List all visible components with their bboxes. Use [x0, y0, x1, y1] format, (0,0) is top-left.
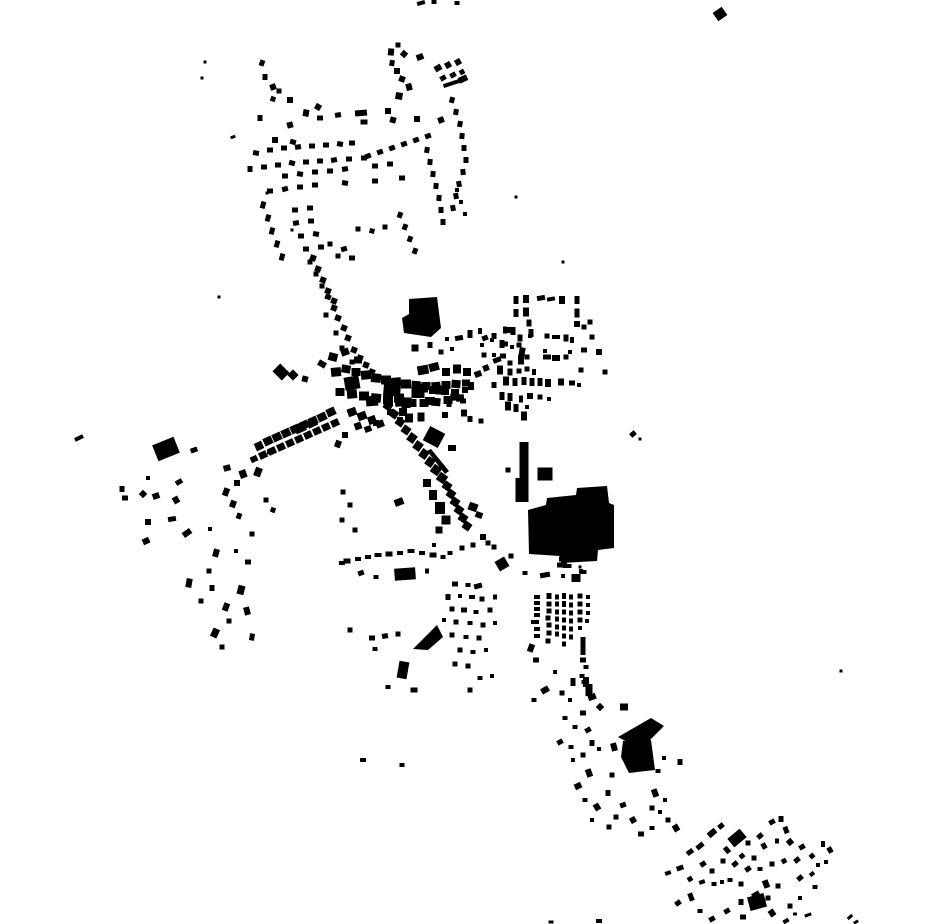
building-footprint: [314, 272, 319, 277]
building-footprint: [582, 325, 587, 330]
building-footprint: [320, 284, 325, 289]
l-building-block: [621, 740, 655, 773]
building-footprint: [456, 181, 462, 188]
building-footprint: [350, 346, 358, 354]
building-footprint: [394, 68, 400, 74]
building-footprint: [356, 227, 361, 232]
building-footprint: [555, 602, 559, 607]
building-footprint: [411, 688, 418, 693]
building-footprint: [779, 816, 784, 822]
building-footprint: [385, 108, 391, 114]
building-footprint: [569, 603, 573, 608]
building-footprint: [534, 613, 540, 617]
building-footprint: [222, 602, 230, 612]
building-footprint: [578, 610, 583, 615]
building-footprint: [372, 164, 378, 169]
building-footprint: [453, 193, 459, 200]
building-footprint: [250, 455, 259, 463]
building-footprint: [596, 919, 602, 923]
building-footprint: [423, 426, 446, 448]
building-footprint: [569, 635, 573, 640]
building-footprint: [229, 500, 237, 509]
building-footprint: [545, 379, 551, 387]
building-footprint: [555, 632, 559, 637]
building-footprint: [439, 207, 444, 213]
building-footprint: [468, 330, 473, 338]
building-footprint: [458, 648, 463, 653]
building-footprint: [614, 815, 619, 820]
building-footprint: [270, 507, 276, 513]
building-footprint: [583, 798, 588, 802]
building-footprint: [505, 402, 511, 411]
l-building-bar: [618, 718, 664, 744]
building-footprint: [323, 143, 329, 148]
building-footprint: [480, 343, 484, 347]
building-footprint: [394, 567, 416, 580]
building-footprint: [804, 912, 812, 917]
building-footprint: [574, 782, 583, 790]
building-footprint: [397, 417, 403, 423]
building-footprint: [236, 512, 243, 519]
building-footprint: [464, 635, 469, 639]
building-footprint: [436, 527, 443, 534]
building-footprint: [412, 345, 419, 352]
building-footprint: [552, 335, 560, 339]
building-footprint: [381, 376, 391, 385]
building-footprint: [218, 296, 221, 299]
building-footprint: [781, 858, 788, 865]
building-footprint: [352, 368, 361, 376]
building-footprint: [267, 148, 273, 153]
building-footprint: [547, 593, 552, 599]
building-footprint: [270, 96, 276, 102]
building-footprint: [569, 595, 573, 600]
building-footprint: [571, 758, 575, 762]
building-footprint: [258, 115, 263, 121]
building-footprint: [590, 740, 595, 746]
building-footprint: [776, 884, 781, 889]
building-footprint: [139, 490, 147, 498]
building-footprint: [210, 585, 215, 591]
building-footprint: [263, 74, 268, 80]
building-footprint: [577, 383, 581, 387]
building-footprint: [433, 64, 442, 73]
building-footprint: [782, 826, 789, 834]
building-footprint: [442, 412, 448, 418]
building-footprint: [710, 869, 715, 874]
building-footprint: [212, 548, 220, 557]
building-footprint: [813, 885, 818, 889]
building-footprint: [568, 698, 572, 702]
building-footprint: [568, 350, 572, 354]
building-footprint: [518, 356, 524, 365]
building-footprint: [435, 502, 445, 514]
building-footprint: [297, 171, 304, 177]
building-footprint: [258, 450, 268, 460]
building-footprint: [234, 549, 238, 553]
building-footprint: [603, 370, 608, 375]
building-footprint: [449, 71, 457, 78]
building-footprint: [586, 595, 590, 599]
building-footprint: [428, 342, 433, 348]
building-footprint: [596, 349, 602, 355]
building-footprint: [343, 375, 360, 390]
building-footprint: [521, 412, 527, 421]
building-footprint: [223, 464, 231, 472]
building-footprint: [571, 678, 576, 686]
building-footprint: [466, 664, 471, 669]
building-footprint: [448, 551, 453, 555]
building-footprint: [396, 632, 401, 637]
building-footprint: [540, 572, 551, 579]
building-footprint: [432, 543, 436, 547]
building-footprint: [459, 133, 465, 139]
building-footprint: [245, 560, 251, 565]
building-footprint: [474, 370, 483, 378]
building-footprint: [437, 116, 445, 124]
building-footprint: [281, 146, 287, 151]
building-footprint: [572, 574, 581, 582]
building-footprint: [569, 381, 575, 386]
building-footprint: [556, 738, 564, 745]
building-footprint: [590, 335, 595, 340]
building-footprint: [579, 566, 582, 569]
building-footprint: [462, 387, 468, 393]
building-footprint: [744, 865, 752, 873]
building-footprint: [448, 445, 456, 451]
building-footprint: [337, 141, 344, 147]
building-footprint: [523, 571, 528, 575]
building-footprint: [374, 575, 379, 579]
building-footprint: [796, 874, 804, 882]
building-footprint: [201, 77, 204, 80]
building-footprint: [249, 633, 255, 641]
building-footprint: [519, 396, 523, 403]
building-footprint: [450, 607, 455, 612]
building-footprint: [826, 846, 833, 854]
building-footprint: [493, 595, 497, 600]
building-footprint: [610, 773, 615, 778]
building-footprint: [477, 636, 482, 641]
building-footprint: [529, 329, 534, 337]
building-footprint: [549, 921, 554, 924]
building-footprint: [513, 378, 518, 386]
building-footprint: [371, 373, 382, 383]
building-footprint: [847, 914, 854, 920]
building-footprint: [713, 7, 728, 22]
building-footprint: [578, 594, 583, 599]
building-footprint: [317, 159, 323, 164]
building-footprint: [731, 860, 739, 868]
building-footprint: [569, 745, 574, 749]
building-footprint: [334, 440, 342, 449]
building-footprint: [482, 353, 487, 358]
building-footprint: [312, 426, 322, 436]
building-footprint: [253, 467, 263, 478]
building-footprint: [365, 555, 371, 559]
building-footprint: [766, 896, 771, 901]
building-footprint: [471, 650, 476, 654]
building-footprint: [758, 867, 763, 871]
building-footprint: [561, 574, 565, 578]
building-footprint: [265, 214, 272, 222]
building-footprint: [273, 364, 290, 381]
building-footprint: [728, 878, 733, 882]
building-footprint: [569, 619, 573, 624]
building-footprint: [500, 340, 505, 348]
building-footprint: [547, 631, 552, 636]
building-footprint: [590, 818, 594, 822]
building-footprint: [375, 553, 382, 557]
building-footprint: [786, 838, 794, 846]
building-footprint: [312, 183, 318, 188]
building-footprint: [562, 642, 566, 647]
building-footprint: [199, 599, 204, 604]
building-footprint: [678, 759, 683, 765]
building-footprint: [756, 832, 764, 840]
building-footprint: [473, 583, 482, 590]
building-footprint: [451, 389, 459, 395]
building-footprint: [466, 583, 471, 587]
building-footprint: [277, 89, 282, 94]
building-footprint: [387, 409, 393, 415]
building-footprint: [503, 327, 507, 334]
building-footprint: [353, 528, 358, 533]
building-footprint: [514, 309, 519, 317]
building-footprint: [579, 368, 584, 373]
building-footprint: [328, 352, 339, 362]
building-footprint: [142, 537, 151, 545]
building-footprint: [586, 611, 590, 615]
building-footprint: [788, 904, 793, 909]
building-footprint: [354, 422, 363, 431]
building-footprint: [508, 369, 513, 376]
building-footprint: [523, 295, 529, 303]
building-footprint: [262, 435, 274, 446]
building-footprint: [400, 763, 405, 767]
building-footprint: [330, 297, 338, 305]
building-footprint: [547, 397, 551, 401]
building-footprint: [386, 685, 391, 689]
building-footprint: [712, 882, 717, 886]
building-footprint: [638, 832, 644, 837]
building-footprint: [452, 582, 458, 587]
building-footprint: [400, 141, 407, 148]
building-footprint: [538, 468, 553, 481]
building-footprint: [220, 645, 225, 650]
building-footprint: [555, 625, 559, 630]
building-footprint: [740, 915, 746, 920]
building-footprint: [442, 368, 450, 376]
building-footprint: [687, 892, 694, 901]
building-footprint: [349, 256, 355, 261]
building-footprint: [478, 328, 482, 334]
building-footprint: [269, 83, 277, 91]
building-footprint: [543, 355, 551, 360]
building-footprint: [400, 424, 411, 435]
building-footprint: [488, 608, 493, 613]
building-footprint: [298, 234, 304, 239]
building-footprint: [525, 355, 530, 360]
building-footprint: [208, 527, 212, 531]
building-footprint: [389, 116, 396, 123]
building-footprint: [342, 432, 348, 438]
building-footprint: [534, 627, 540, 631]
building-footprint: [324, 313, 329, 318]
building-footprint: [373, 647, 378, 651]
building-footprint: [238, 469, 247, 479]
building-footprint: [425, 569, 429, 574]
building-footprint: [382, 633, 389, 639]
building-footprint: [534, 595, 540, 599]
building-footprint: [553, 670, 557, 674]
building-footprint: [394, 497, 405, 507]
building-footprint: [824, 860, 828, 864]
building-footprint: [330, 418, 340, 428]
building-footprint: [417, 0, 426, 6]
building-footprint: [460, 399, 466, 404]
building-footprint: [467, 502, 478, 513]
building-footprint: [274, 240, 281, 248]
building-footprint: [578, 602, 583, 607]
building-footprint: [386, 552, 393, 557]
building-footprint: [397, 661, 410, 679]
building-footprint: [650, 806, 655, 811]
building-footprint: [515, 196, 518, 199]
building-footprint: [853, 919, 859, 924]
building-footprint: [264, 498, 269, 503]
building-footprint: [399, 176, 405, 181]
building-footprint: [581, 753, 586, 758]
building-footprint: [506, 468, 511, 473]
building-footprint: [292, 208, 298, 213]
building-footprint: [344, 334, 352, 342]
building-footprint: [450, 633, 455, 638]
building-footprint: [793, 913, 797, 916]
building-footprint: [514, 404, 519, 412]
building-footprint: [428, 362, 440, 372]
building-footprint: [517, 343, 522, 348]
building-footprint: [324, 294, 331, 301]
building-footprint: [405, 414, 413, 423]
building-footprint: [398, 75, 406, 83]
building-footprint: [523, 308, 529, 317]
building-footprint: [492, 333, 497, 339]
building-footprint: [354, 357, 362, 364]
building-footprint: [721, 859, 726, 864]
building-footprint: [355, 557, 361, 561]
building-footprint: [574, 321, 580, 327]
building-footprint: [555, 610, 559, 615]
building-footprint: [629, 816, 637, 824]
building-footprint: [793, 856, 801, 864]
building-footprint: [425, 397, 435, 405]
building-footprint: [464, 157, 469, 163]
building-footprint: [267, 189, 273, 194]
building-footprint: [840, 670, 843, 673]
building-footprint: [444, 61, 452, 69]
building-footprint: [210, 627, 220, 638]
building-footprint: [760, 842, 767, 850]
building-footprint: [809, 871, 815, 877]
building-footprint: [479, 419, 484, 424]
building-footprint: [497, 366, 503, 375]
building-footprint: [525, 405, 529, 409]
building-footprint: [395, 92, 403, 100]
building-footprint: [596, 703, 604, 711]
building-footprint: [325, 406, 337, 417]
building-footprint: [782, 918, 789, 924]
building-footprint: [510, 345, 514, 349]
building-footprint: [227, 619, 232, 624]
building-footprint: [348, 503, 353, 508]
building-footprint: [492, 545, 497, 550]
building-footprint: [558, 379, 564, 386]
building-footprint: [493, 621, 497, 625]
building-footprint: [717, 822, 725, 830]
building-footprint: [538, 395, 543, 400]
building-footprint: [248, 166, 253, 172]
building-footprint: [581, 348, 587, 353]
building-footprint: [389, 60, 395, 67]
building-footprint: [442, 516, 451, 525]
building-footprint: [517, 369, 522, 374]
building-footprint: [439, 350, 444, 355]
building-footprint: [532, 369, 536, 375]
map-page: [0, 0, 930, 924]
building-footprint: [562, 610, 566, 615]
building-footprint: [547, 609, 552, 614]
building-footprint: [564, 335, 569, 342]
building-footprint: [348, 628, 353, 633]
building-footprint: [538, 378, 543, 386]
building-footprint: [460, 546, 465, 551]
building-footprint: [340, 246, 347, 252]
building-footprint: [324, 287, 332, 295]
building-footprint: [578, 626, 582, 630]
building-footprint: [172, 495, 181, 504]
building-footprint: [243, 606, 251, 615]
building-footprint: [450, 347, 454, 351]
building-footprint: [651, 788, 659, 798]
building-footprint: [327, 169, 333, 174]
building-footprint: [775, 839, 779, 844]
building-footprint: [450, 205, 456, 212]
building-footprint: [408, 549, 415, 553]
building-footprint: [547, 602, 552, 607]
building-footprint: [610, 742, 618, 751]
building-footprint: [537, 295, 546, 301]
building-footprint: [424, 147, 430, 154]
building-footprint: [272, 137, 278, 143]
building-footprint: [555, 595, 559, 600]
building-footprint: [723, 846, 731, 855]
building-footprint: [469, 595, 475, 599]
building-footprint: [507, 327, 511, 333]
building-footprint: [446, 594, 451, 600]
building-footprint: [546, 616, 551, 621]
building-footprint: [286, 121, 293, 128]
building-footprint: [317, 116, 323, 121]
building-footprint: [388, 145, 395, 152]
building-footprint: [559, 296, 565, 304]
building-footprint: [460, 169, 466, 175]
building-footprint: [288, 160, 295, 166]
building-footprint: [250, 532, 255, 537]
building-footprint: [439, 74, 447, 81]
building-footprint: [185, 578, 192, 588]
building-footprint: [597, 747, 601, 751]
